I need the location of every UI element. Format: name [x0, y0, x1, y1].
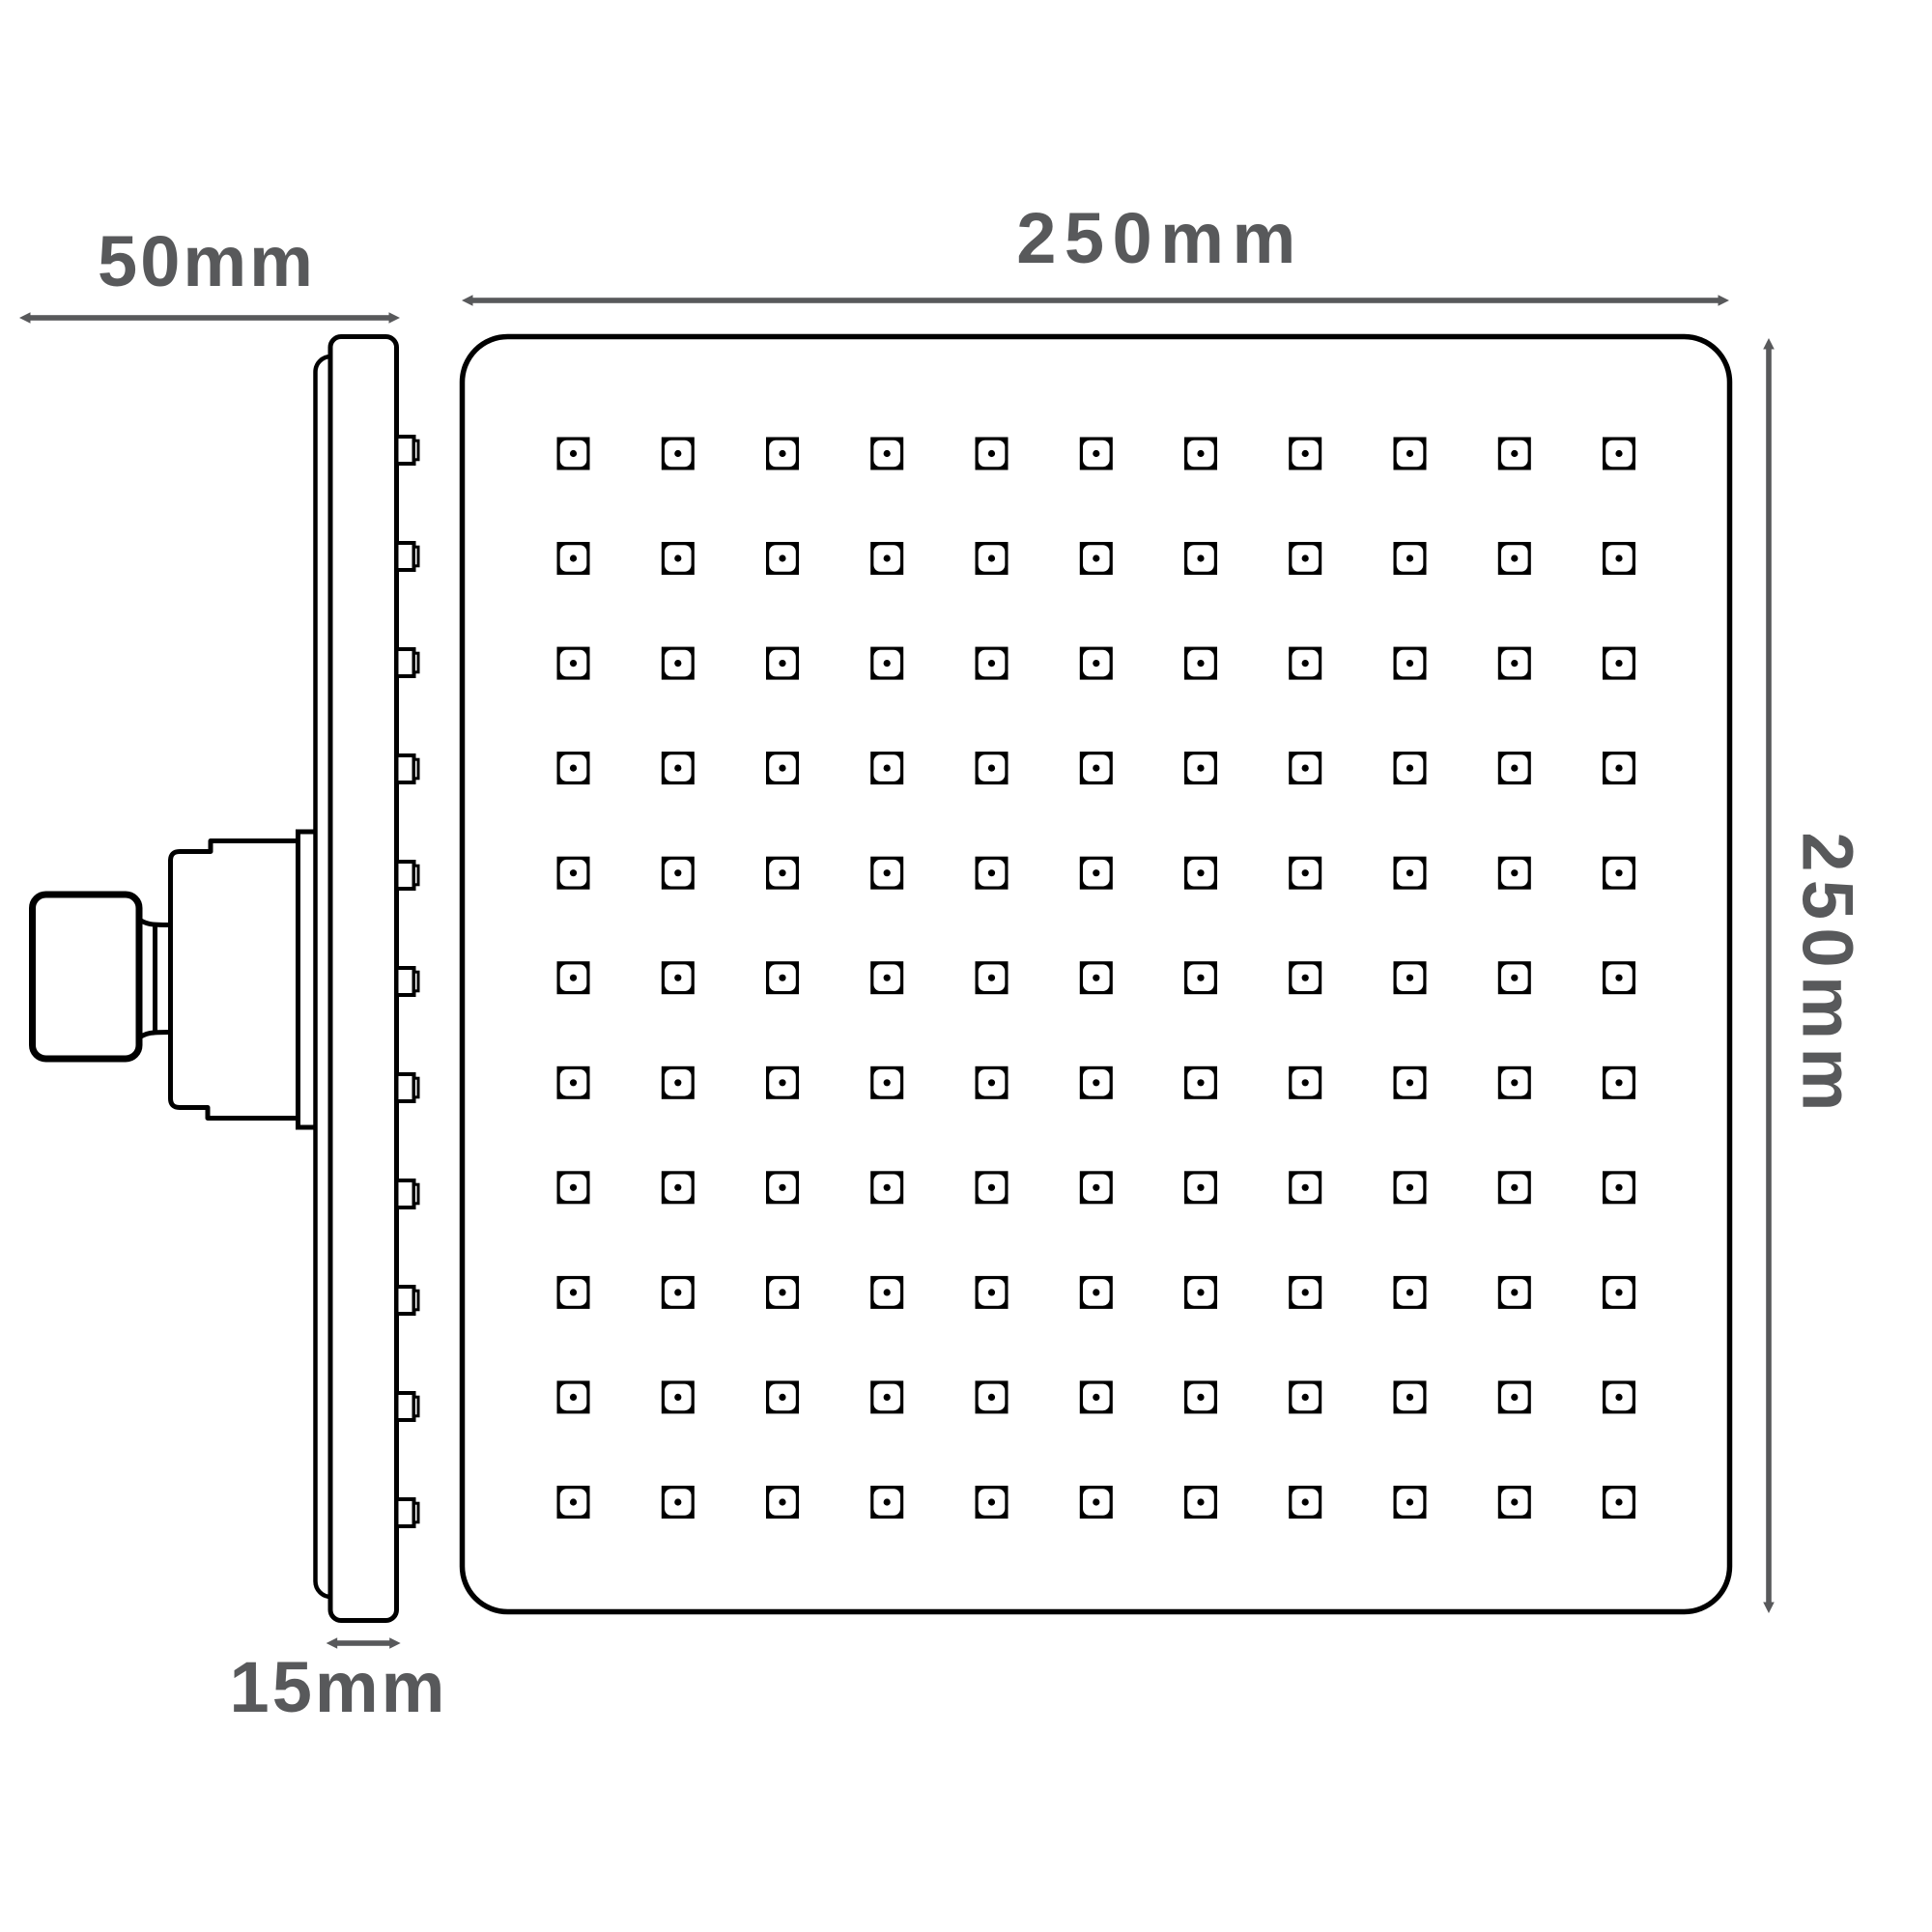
svg-text:15mm: 15mm	[230, 1647, 448, 1727]
svg-text:250mm: 250mm	[1788, 832, 1868, 1120]
svg-text:50mm: 50mm	[98, 221, 316, 301]
svg-text:250mm: 250mm	[1016, 198, 1304, 278]
